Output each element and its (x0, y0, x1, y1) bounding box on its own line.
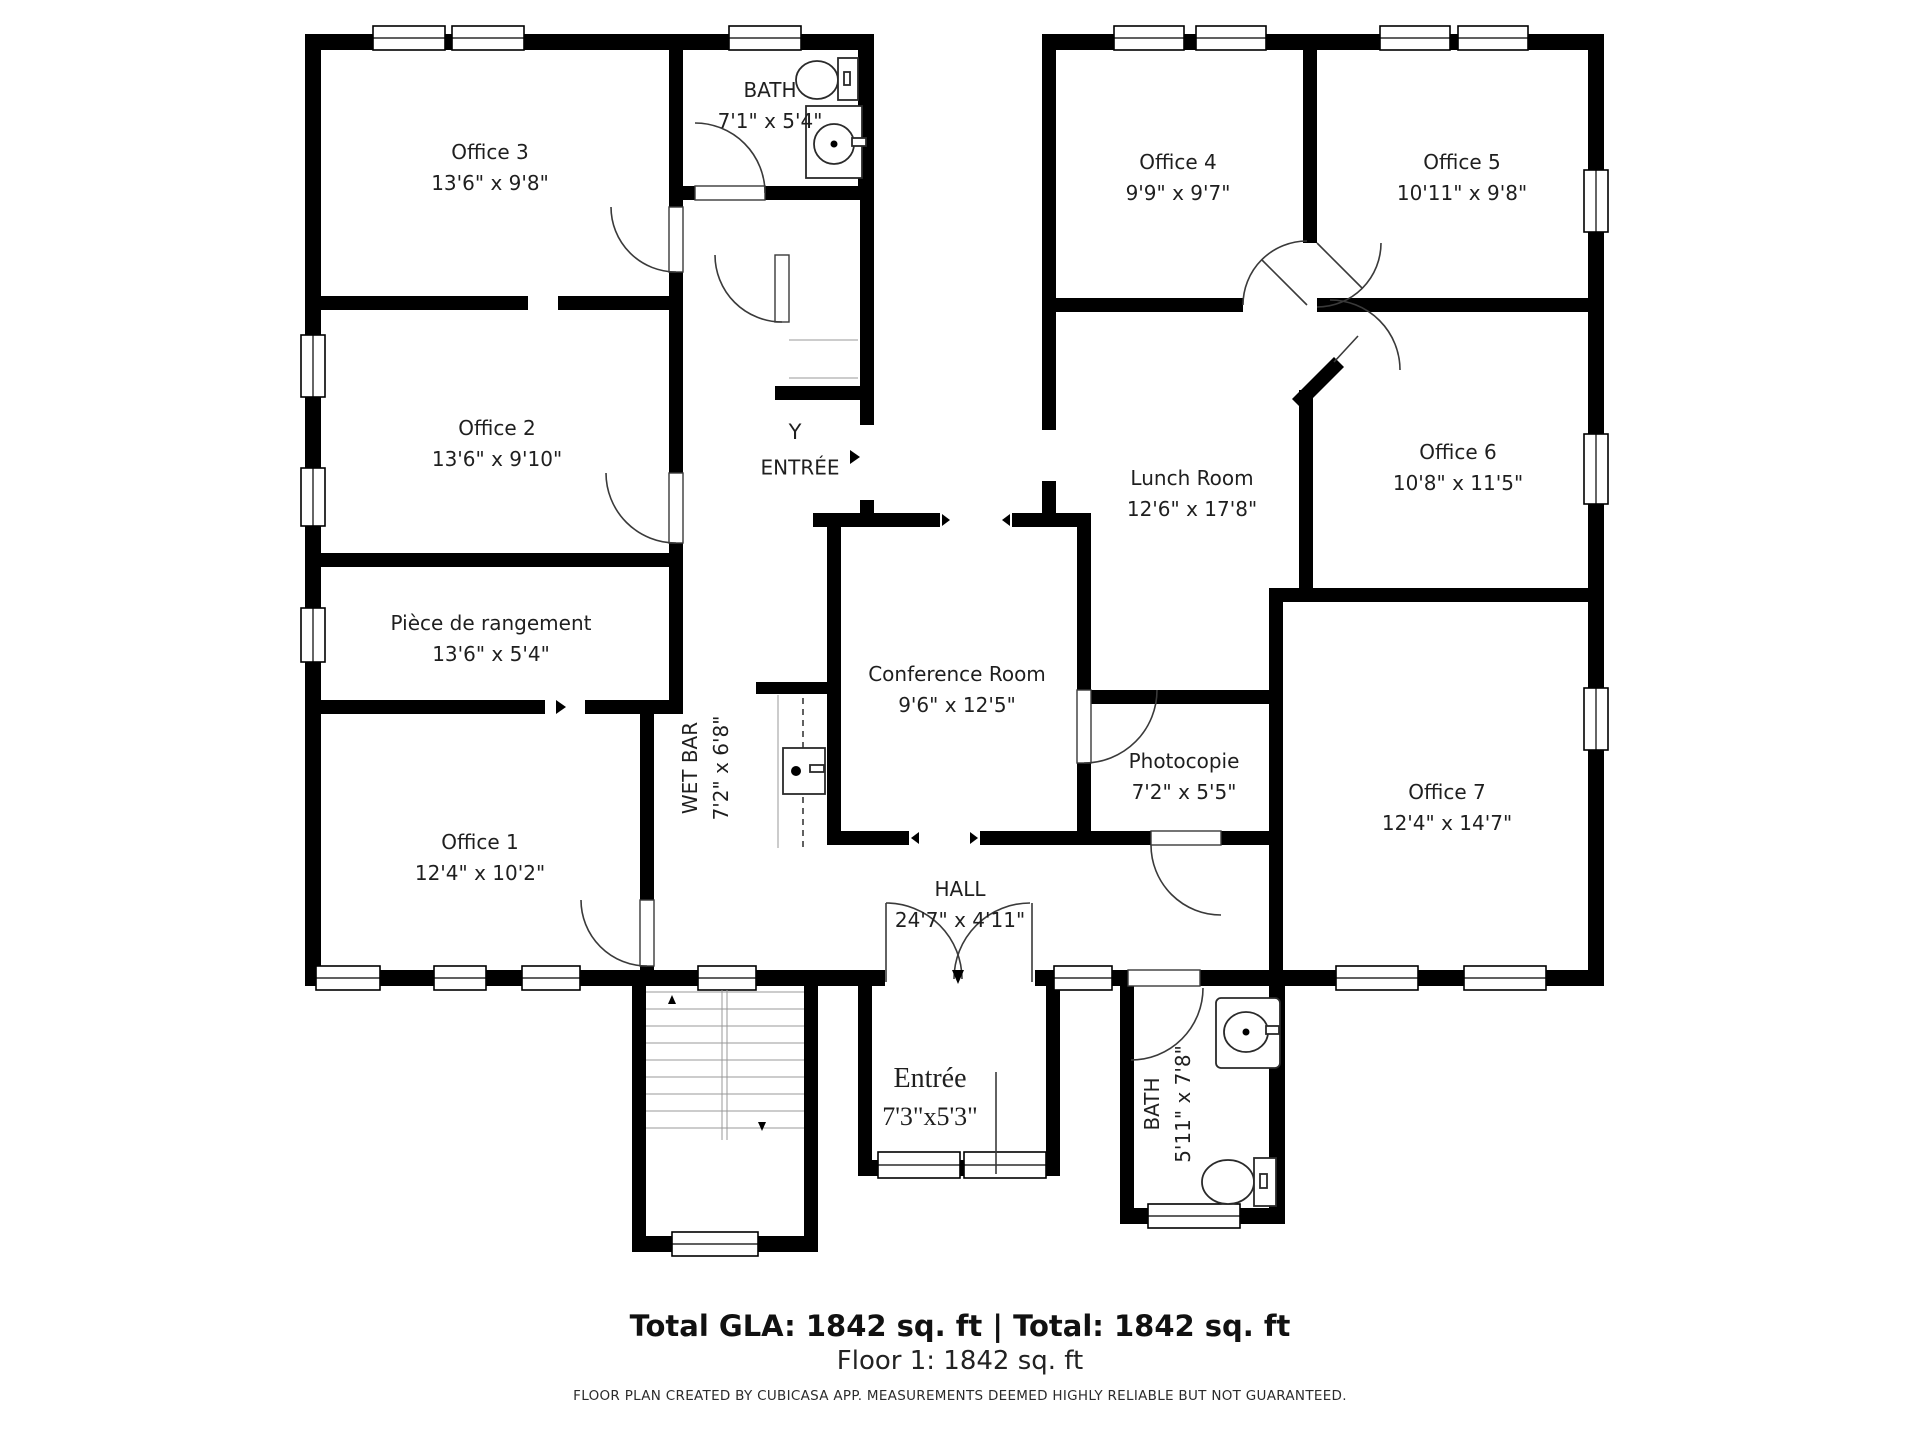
room-dims: 12'4" x 14'7" (1382, 808, 1512, 839)
room-dims: 5'11" x 7'8" (1168, 1045, 1199, 1163)
entry-direction-marker: Y (789, 420, 802, 444)
room-label-hall: HALL 24'7" x 4'11" (895, 874, 1025, 936)
room-label-wet-bar: WET BAR 7'2" x 6'8" (675, 716, 737, 821)
room-name: Office 3 (431, 137, 549, 168)
room-name: Lunch Room (1127, 463, 1257, 494)
wet-bar-fixtures (778, 695, 825, 848)
room-name: Entrée (882, 1060, 978, 1098)
room-label-office-6: Office 6 10'8" x 11'5" (1393, 437, 1523, 499)
closet-door-arc (715, 255, 782, 322)
office2-door-arc (606, 473, 676, 543)
room-name: Photocopie (1129, 746, 1240, 777)
room-dims: 13'6" x 9'10" (432, 444, 562, 475)
floor-area-line: Floor 1: 1842 sq. ft (0, 1344, 1920, 1378)
room-name: BATH (718, 75, 823, 106)
room-name: Office 5 (1397, 147, 1527, 178)
office7-door-arc (1151, 845, 1221, 915)
room-dims: 13'6" x 5'4" (391, 639, 592, 670)
room-dims: 7'3"x5'3" (882, 1098, 978, 1136)
room-dims: 7'2" x 5'5" (1129, 777, 1240, 808)
room-name: Office 7 (1382, 777, 1512, 808)
area-summary: Total GLA: 1842 sq. ft | Total: 1842 sq.… (0, 1308, 1920, 1378)
room-label-conference-room: Conference Room 9'6" x 12'5" (868, 659, 1046, 721)
room-label-bath-top: BATH 7'1" x 5'4" (718, 75, 823, 137)
closet-shelves (789, 340, 858, 378)
room-name: Office 1 (415, 827, 545, 858)
room-dims: 9'9" x 9'7" (1126, 178, 1231, 209)
room-label-office-1: Office 1 12'4" x 10'2" (415, 827, 545, 889)
total-gla-line: Total GLA: 1842 sq. ft | Total: 1842 sq.… (0, 1308, 1920, 1344)
room-name: Office 4 (1126, 147, 1231, 178)
toilet-icon (1202, 1158, 1276, 1206)
stairs-up-arrow (668, 995, 676, 1004)
office3-door-arc (611, 207, 676, 272)
room-dims: 13'6" x 9'8" (431, 168, 549, 199)
room-name: BATH (1137, 1045, 1168, 1163)
room-label-entree-bottom: Entrée 7'3"x5'3" (882, 1060, 978, 1136)
room-name: WET BAR (675, 716, 706, 821)
wetbar-sink-icon (783, 748, 825, 794)
room-label-office-7: Office 7 12'4" x 14'7" (1382, 777, 1512, 839)
room-dims: 7'2" x 6'8" (706, 716, 737, 821)
room-name: Office 2 (432, 413, 562, 444)
bath-bottom-fixtures (1202, 998, 1280, 1206)
room-label-office-5: Office 5 10'11" x 9'8" (1397, 147, 1527, 209)
room-dims: 10'11" x 9'8" (1397, 178, 1527, 209)
stairs-down-arrow (758, 1122, 766, 1131)
disclaimer-note: FLOOR PLAN CREATED BY CUBICASA APP. MEAS… (0, 1388, 1920, 1404)
room-name: Pièce de rangement (391, 608, 592, 639)
room-label-office-3: Office 3 13'6" x 9'8" (431, 137, 549, 199)
room-name: Office 6 (1393, 437, 1523, 468)
room-label-lunch-room: Lunch Room 12'6" x 17'8" (1127, 463, 1257, 525)
room-label-piece-de-rangement: Pièce de rangement 13'6" x 5'4" (391, 608, 592, 670)
room-dims: 12'4" x 10'2" (415, 858, 545, 889)
entree-opening-arrow (850, 450, 860, 464)
rangement-opening-arrow (556, 700, 566, 714)
room-label-photocopie: Photocopie 7'2" x 5'5" (1129, 746, 1240, 808)
stairs-icon (646, 990, 804, 1140)
room-label-bath-bottom: BATH 5'11" x 7'8" (1137, 1045, 1199, 1163)
room-label-office-2: Office 2 13'6" x 9'10" (432, 413, 562, 475)
room-label-entree-mid: ENTRÉE (761, 453, 840, 484)
room-name: Conference Room (868, 659, 1046, 690)
office1-door-arc (581, 900, 647, 966)
sink-icon (1216, 998, 1280, 1068)
room-dims: 10'8" x 11'5" (1393, 468, 1523, 499)
room-name: HALL (895, 874, 1025, 905)
room-name: ENTRÉE (761, 453, 840, 484)
room-dims: 7'1" x 5'4" (718, 106, 823, 137)
room-dims: 12'6" x 17'8" (1127, 494, 1257, 525)
room-dims: 9'6" x 12'5" (868, 690, 1046, 721)
room-label-office-4: Office 4 9'9" x 9'7" (1126, 147, 1231, 209)
room-dims: 24'7" x 4'11" (895, 905, 1025, 936)
floor-plan: Office 3 13'6" x 9'8" BATH 7'1" x 5'4" O… (0, 0, 1920, 1440)
